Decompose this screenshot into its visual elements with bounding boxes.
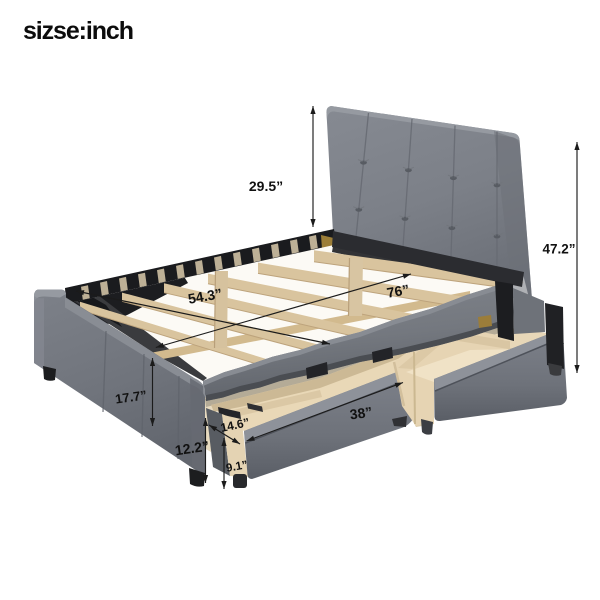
- svg-text:47.2”: 47.2”: [542, 242, 575, 257]
- svg-text:29.5”: 29.5”: [249, 178, 283, 194]
- svg-text:38”: 38”: [349, 404, 374, 423]
